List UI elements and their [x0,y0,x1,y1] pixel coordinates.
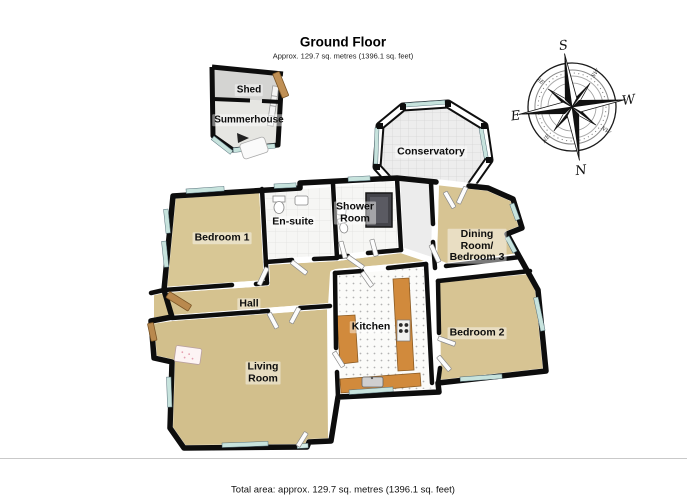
room-label-conservatory: Conservatory [395,146,467,158]
compass-letter-se: SE [535,77,545,86]
room-label-shed: Shed [235,84,263,96]
compass-letter-e: E [509,108,522,124]
room-label-ensuite: En-suite [270,216,315,228]
room-label-summerhouse: Summerhouse [212,114,285,126]
room-label-shower-room: Shower Room [334,202,376,225]
footer-divider [0,458,687,459]
floorplan-canvas: S N E W SE SW NE NW [0,0,687,499]
compass-letter-n: N [573,163,588,180]
compass-letter-ne: NE [541,134,552,145]
page-title: Ground Floor [300,35,386,50]
porch-pram [174,345,202,364]
room-label-hall: Hall [237,298,260,310]
compass-letter-s: S [558,38,569,54]
compass-rose: S N E W SE SW NE NW [500,30,646,187]
ensuite-toilet [273,196,285,214]
sink [362,377,383,387]
page-subtitle: Approx. 129.7 sq. metres (1396.1 sq. fee… [273,52,414,61]
ensuite-basin [295,196,308,205]
hob [397,320,410,341]
room-label-living-room: Living Room [246,362,281,385]
room-living-floor [151,306,331,448]
room-label-bedroom2: Bedroom 2 [448,327,507,339]
footer-total-area: Total area: approx. 129.7 sq. metres (13… [231,485,455,496]
compass-letter-w: W [621,92,638,109]
compass-cardinal-points [511,46,633,168]
room-label-kitchen: Kitchen [350,321,393,333]
room-label-dining-room-bedroom3: Dining Room/ Bedroom 3 [448,229,507,264]
floorplan-page: S N E W SE SW NE NW Ground Floor Approx.… [0,0,687,499]
room-label-bedroom1: Bedroom 1 [193,232,252,244]
